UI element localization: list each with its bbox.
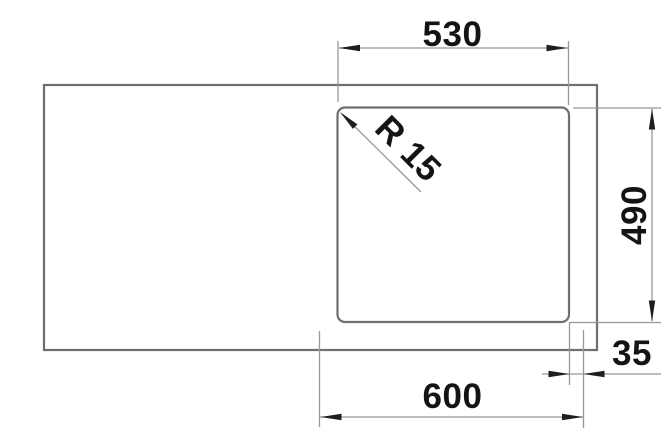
label-cutout-depth: 490 bbox=[615, 185, 654, 245]
arrow-530-right bbox=[547, 45, 568, 51]
dimension-lines bbox=[320, 41, 662, 428]
label-sink-width: 600 bbox=[423, 377, 483, 416]
sink-cutout-drawing: 530 490 600 35 R 15 bbox=[0, 0, 666, 440]
technical-drawing-svg: 530 490 600 35 R 15 bbox=[0, 0, 666, 440]
arrow-530-left bbox=[339, 45, 360, 51]
dimension-labels: 530 490 600 35 R 15 bbox=[367, 15, 654, 416]
arrowheads bbox=[321, 45, 656, 420]
countertop-outline bbox=[44, 85, 597, 350]
label-rim-offset: 35 bbox=[612, 334, 652, 373]
arrow-35-right-outside bbox=[584, 371, 605, 377]
label-cutout-width: 530 bbox=[423, 15, 483, 54]
arrow-490-down bbox=[649, 301, 655, 322]
arrow-600-right bbox=[562, 414, 583, 420]
arrow-600-left bbox=[321, 414, 342, 420]
arrow-490-up bbox=[649, 109, 655, 130]
outlines bbox=[44, 85, 597, 350]
arrow-35-left-outside bbox=[549, 371, 570, 377]
label-corner-radius: R 15 bbox=[367, 108, 448, 189]
arrow-radius-leader bbox=[340, 112, 357, 129]
